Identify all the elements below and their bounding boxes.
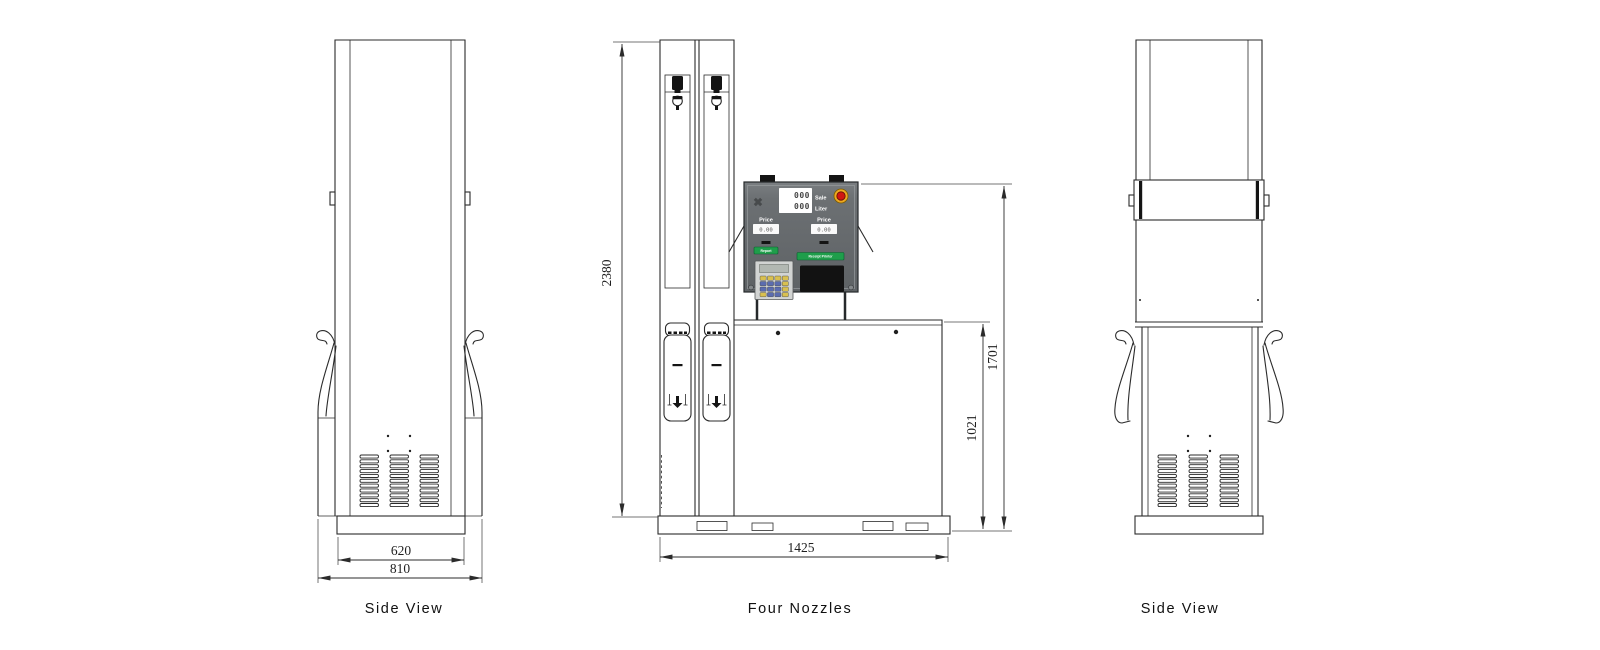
keypad-key bbox=[767, 276, 773, 280]
vent-slat bbox=[360, 499, 379, 502]
vent-slat bbox=[1220, 494, 1239, 497]
dimension-1701: 1701 bbox=[861, 184, 1012, 531]
vent-slat bbox=[420, 484, 439, 487]
vent-slat bbox=[1189, 484, 1208, 487]
vent-slat bbox=[420, 455, 439, 458]
column-inner-walls bbox=[350, 40, 451, 516]
side-tab-right bbox=[1264, 195, 1269, 206]
cabinet-outline bbox=[734, 320, 942, 516]
vent-slat bbox=[390, 465, 409, 468]
vent-slat bbox=[1220, 470, 1239, 473]
screw-dot bbox=[1187, 435, 1189, 437]
vent-slat bbox=[390, 484, 409, 487]
vent-slat bbox=[420, 474, 439, 477]
vent-slat bbox=[420, 494, 439, 497]
column-outline bbox=[335, 40, 465, 516]
side-tab-left bbox=[330, 192, 335, 205]
dim-label: 1425 bbox=[788, 540, 815, 555]
vent-slat bbox=[1189, 494, 1208, 497]
screw-icon bbox=[849, 285, 854, 290]
printer-slot bbox=[800, 266, 844, 293]
keypad-key bbox=[760, 287, 766, 291]
vent-slat bbox=[1158, 494, 1177, 497]
keypad-key bbox=[767, 293, 773, 297]
vent-slat bbox=[390, 494, 409, 497]
keypad-key bbox=[775, 293, 781, 297]
vent-slat bbox=[1220, 479, 1239, 482]
drawing-canvas: 620 810 Side View bbox=[0, 0, 1600, 650]
nozzle-holster-profile bbox=[466, 343, 482, 416]
vent-slat bbox=[1158, 460, 1177, 463]
view-title-front: Four Nozzles bbox=[748, 601, 853, 617]
dimension-2380: 2380 bbox=[599, 42, 660, 517]
nozzle-holster-profile bbox=[318, 343, 334, 416]
screw-dot bbox=[409, 435, 411, 437]
vent-slat bbox=[360, 489, 379, 492]
keypad-key bbox=[775, 282, 781, 286]
vent-slat bbox=[1189, 489, 1208, 492]
vent-slat bbox=[1220, 460, 1239, 463]
emergency-stop-button bbox=[837, 192, 845, 200]
vent-slat bbox=[390, 504, 409, 507]
base-plate bbox=[1135, 516, 1263, 534]
keypad-key bbox=[775, 276, 781, 280]
keypad-key bbox=[760, 293, 766, 297]
vent-slat bbox=[1189, 470, 1208, 473]
vent-slat bbox=[1189, 465, 1208, 468]
nozzle-hook-icon bbox=[317, 331, 335, 345]
nozzle-hook-icon bbox=[1264, 331, 1282, 345]
dimension-1021: 1021 bbox=[944, 322, 990, 529]
nozzle-holster bbox=[664, 323, 691, 421]
vent-slat bbox=[1189, 474, 1208, 477]
screw-dot bbox=[1209, 450, 1211, 452]
vent-slat bbox=[390, 499, 409, 502]
receipt-button-label: Receipt Printer bbox=[808, 255, 833, 259]
price-value-left: 0.00 bbox=[759, 228, 772, 234]
columns-center-walls bbox=[695, 40, 699, 516]
nozzle-hook-icon bbox=[465, 331, 483, 345]
keypad-key bbox=[760, 282, 766, 286]
screw-dot bbox=[387, 450, 389, 452]
dim-label: 1021 bbox=[964, 415, 979, 442]
technical-drawing-fuel-dispenser: 620 810 Side View bbox=[0, 0, 1600, 650]
vent-slat bbox=[390, 460, 409, 463]
screw-icon bbox=[749, 285, 754, 290]
liter-value: 000 bbox=[794, 202, 810, 211]
keypad-key bbox=[782, 276, 788, 280]
vent-slat bbox=[390, 479, 409, 482]
vent-slat bbox=[360, 494, 379, 497]
vent-slat bbox=[1158, 470, 1177, 473]
vent-slat bbox=[360, 479, 379, 482]
keypad bbox=[755, 261, 793, 300]
view-title-right: Side View bbox=[1141, 601, 1220, 617]
vent-slat bbox=[1158, 504, 1177, 507]
indicator-slot bbox=[820, 241, 829, 244]
dimension-1425: 1425 bbox=[660, 537, 948, 562]
hose-connector-icon bbox=[665, 76, 690, 110]
keypad-key bbox=[767, 282, 773, 286]
vent-slat bbox=[1220, 465, 1239, 468]
front-view: 000 000 Sale Liter Price Price 0.00 0.00… bbox=[599, 40, 1012, 617]
vent-slat bbox=[360, 465, 379, 468]
dim-label: 2380 bbox=[599, 259, 614, 286]
vent-slat bbox=[360, 470, 379, 473]
bolt-dot bbox=[776, 331, 780, 335]
vent-slat bbox=[390, 455, 409, 458]
keypad-screen bbox=[760, 265, 789, 273]
vent-slat bbox=[390, 489, 409, 492]
vent-slat bbox=[420, 489, 439, 492]
price-value-right: 0.00 bbox=[817, 228, 830, 234]
indicator-slot bbox=[762, 241, 771, 244]
price-label-right: Price bbox=[817, 218, 831, 224]
screw-dot bbox=[387, 435, 389, 437]
keypad-key bbox=[782, 282, 788, 286]
vent-slat bbox=[1220, 499, 1239, 502]
vent-slat bbox=[1158, 465, 1177, 468]
vent-louvers bbox=[1158, 455, 1239, 507]
vent-slat bbox=[420, 465, 439, 468]
dim-label: 620 bbox=[391, 543, 412, 558]
nozzle-hook-icon bbox=[1116, 331, 1134, 345]
panel-head-edge bbox=[1256, 181, 1259, 219]
vent-slat bbox=[1220, 484, 1239, 487]
columns-outline bbox=[660, 40, 734, 516]
screw-dot bbox=[1187, 450, 1189, 452]
keypad-key bbox=[767, 287, 773, 291]
keypad-key bbox=[775, 287, 781, 291]
side-view-left: 620 810 Side View bbox=[317, 40, 484, 617]
screw-dot bbox=[409, 450, 411, 452]
price-label-left: Price bbox=[759, 218, 773, 224]
mid-body-outline bbox=[1136, 220, 1262, 322]
panel-head-edge bbox=[1139, 181, 1142, 219]
vent-slat bbox=[1220, 455, 1239, 458]
nozzle-holster bbox=[703, 323, 730, 421]
liter-label: Liter bbox=[815, 207, 828, 213]
dim-label: 810 bbox=[390, 561, 411, 576]
vent-slat bbox=[420, 499, 439, 502]
vent-slat bbox=[1220, 504, 1239, 507]
vent-slat bbox=[360, 504, 379, 507]
vent-slat bbox=[1158, 455, 1177, 458]
vent-slat bbox=[390, 470, 409, 473]
vent-slat bbox=[420, 460, 439, 463]
side-view-right: Side View bbox=[1115, 40, 1283, 617]
screw-dot bbox=[1209, 435, 1211, 437]
screw-dot bbox=[1139, 299, 1141, 301]
side-tab-left bbox=[1129, 195, 1134, 206]
hose-connector-icon bbox=[704, 76, 729, 110]
vent-slat bbox=[360, 474, 379, 477]
side-tab-right bbox=[465, 192, 470, 205]
keypad-key bbox=[760, 276, 766, 280]
vent-slat bbox=[1158, 474, 1177, 477]
vent-slat bbox=[1220, 489, 1239, 492]
base-plate bbox=[337, 516, 465, 534]
control-panel: 000 000 Sale Liter Price Price 0.00 0.00… bbox=[729, 175, 873, 320]
vent-slat bbox=[1158, 489, 1177, 492]
vent-slat bbox=[420, 470, 439, 473]
sale-label: Sale bbox=[815, 196, 827, 202]
vent-slat bbox=[1158, 499, 1177, 502]
vent-slat bbox=[1189, 460, 1208, 463]
vent-slat bbox=[1189, 479, 1208, 482]
view-title-left: Side View bbox=[365, 601, 444, 617]
vent-slat bbox=[1189, 455, 1208, 458]
top-column-inner-walls bbox=[1150, 40, 1248, 180]
vent-louvers bbox=[360, 455, 439, 507]
sale-value: 000 bbox=[794, 191, 810, 200]
vent-slat bbox=[420, 479, 439, 482]
vent-slat bbox=[420, 504, 439, 507]
dim-label: 1701 bbox=[985, 344, 1000, 371]
vent-slat bbox=[1158, 479, 1177, 482]
vent-slat bbox=[360, 455, 379, 458]
bolt-dot bbox=[894, 330, 898, 334]
cabinet-top-edge bbox=[1135, 322, 1263, 327]
vent-slat bbox=[1220, 474, 1239, 477]
vent-slat bbox=[1158, 484, 1177, 487]
panel-head-profile bbox=[1134, 180, 1264, 220]
keypad-key bbox=[782, 287, 788, 291]
vent-slat bbox=[360, 484, 379, 487]
vent-slat bbox=[1189, 504, 1208, 507]
vent-slat bbox=[1189, 499, 1208, 502]
screw-dot bbox=[1257, 299, 1259, 301]
report-button-label: Report bbox=[761, 249, 773, 253]
vent-slat bbox=[390, 474, 409, 477]
keypad-key bbox=[782, 293, 788, 297]
vent-slat bbox=[360, 460, 379, 463]
top-column-outline bbox=[1136, 40, 1262, 180]
